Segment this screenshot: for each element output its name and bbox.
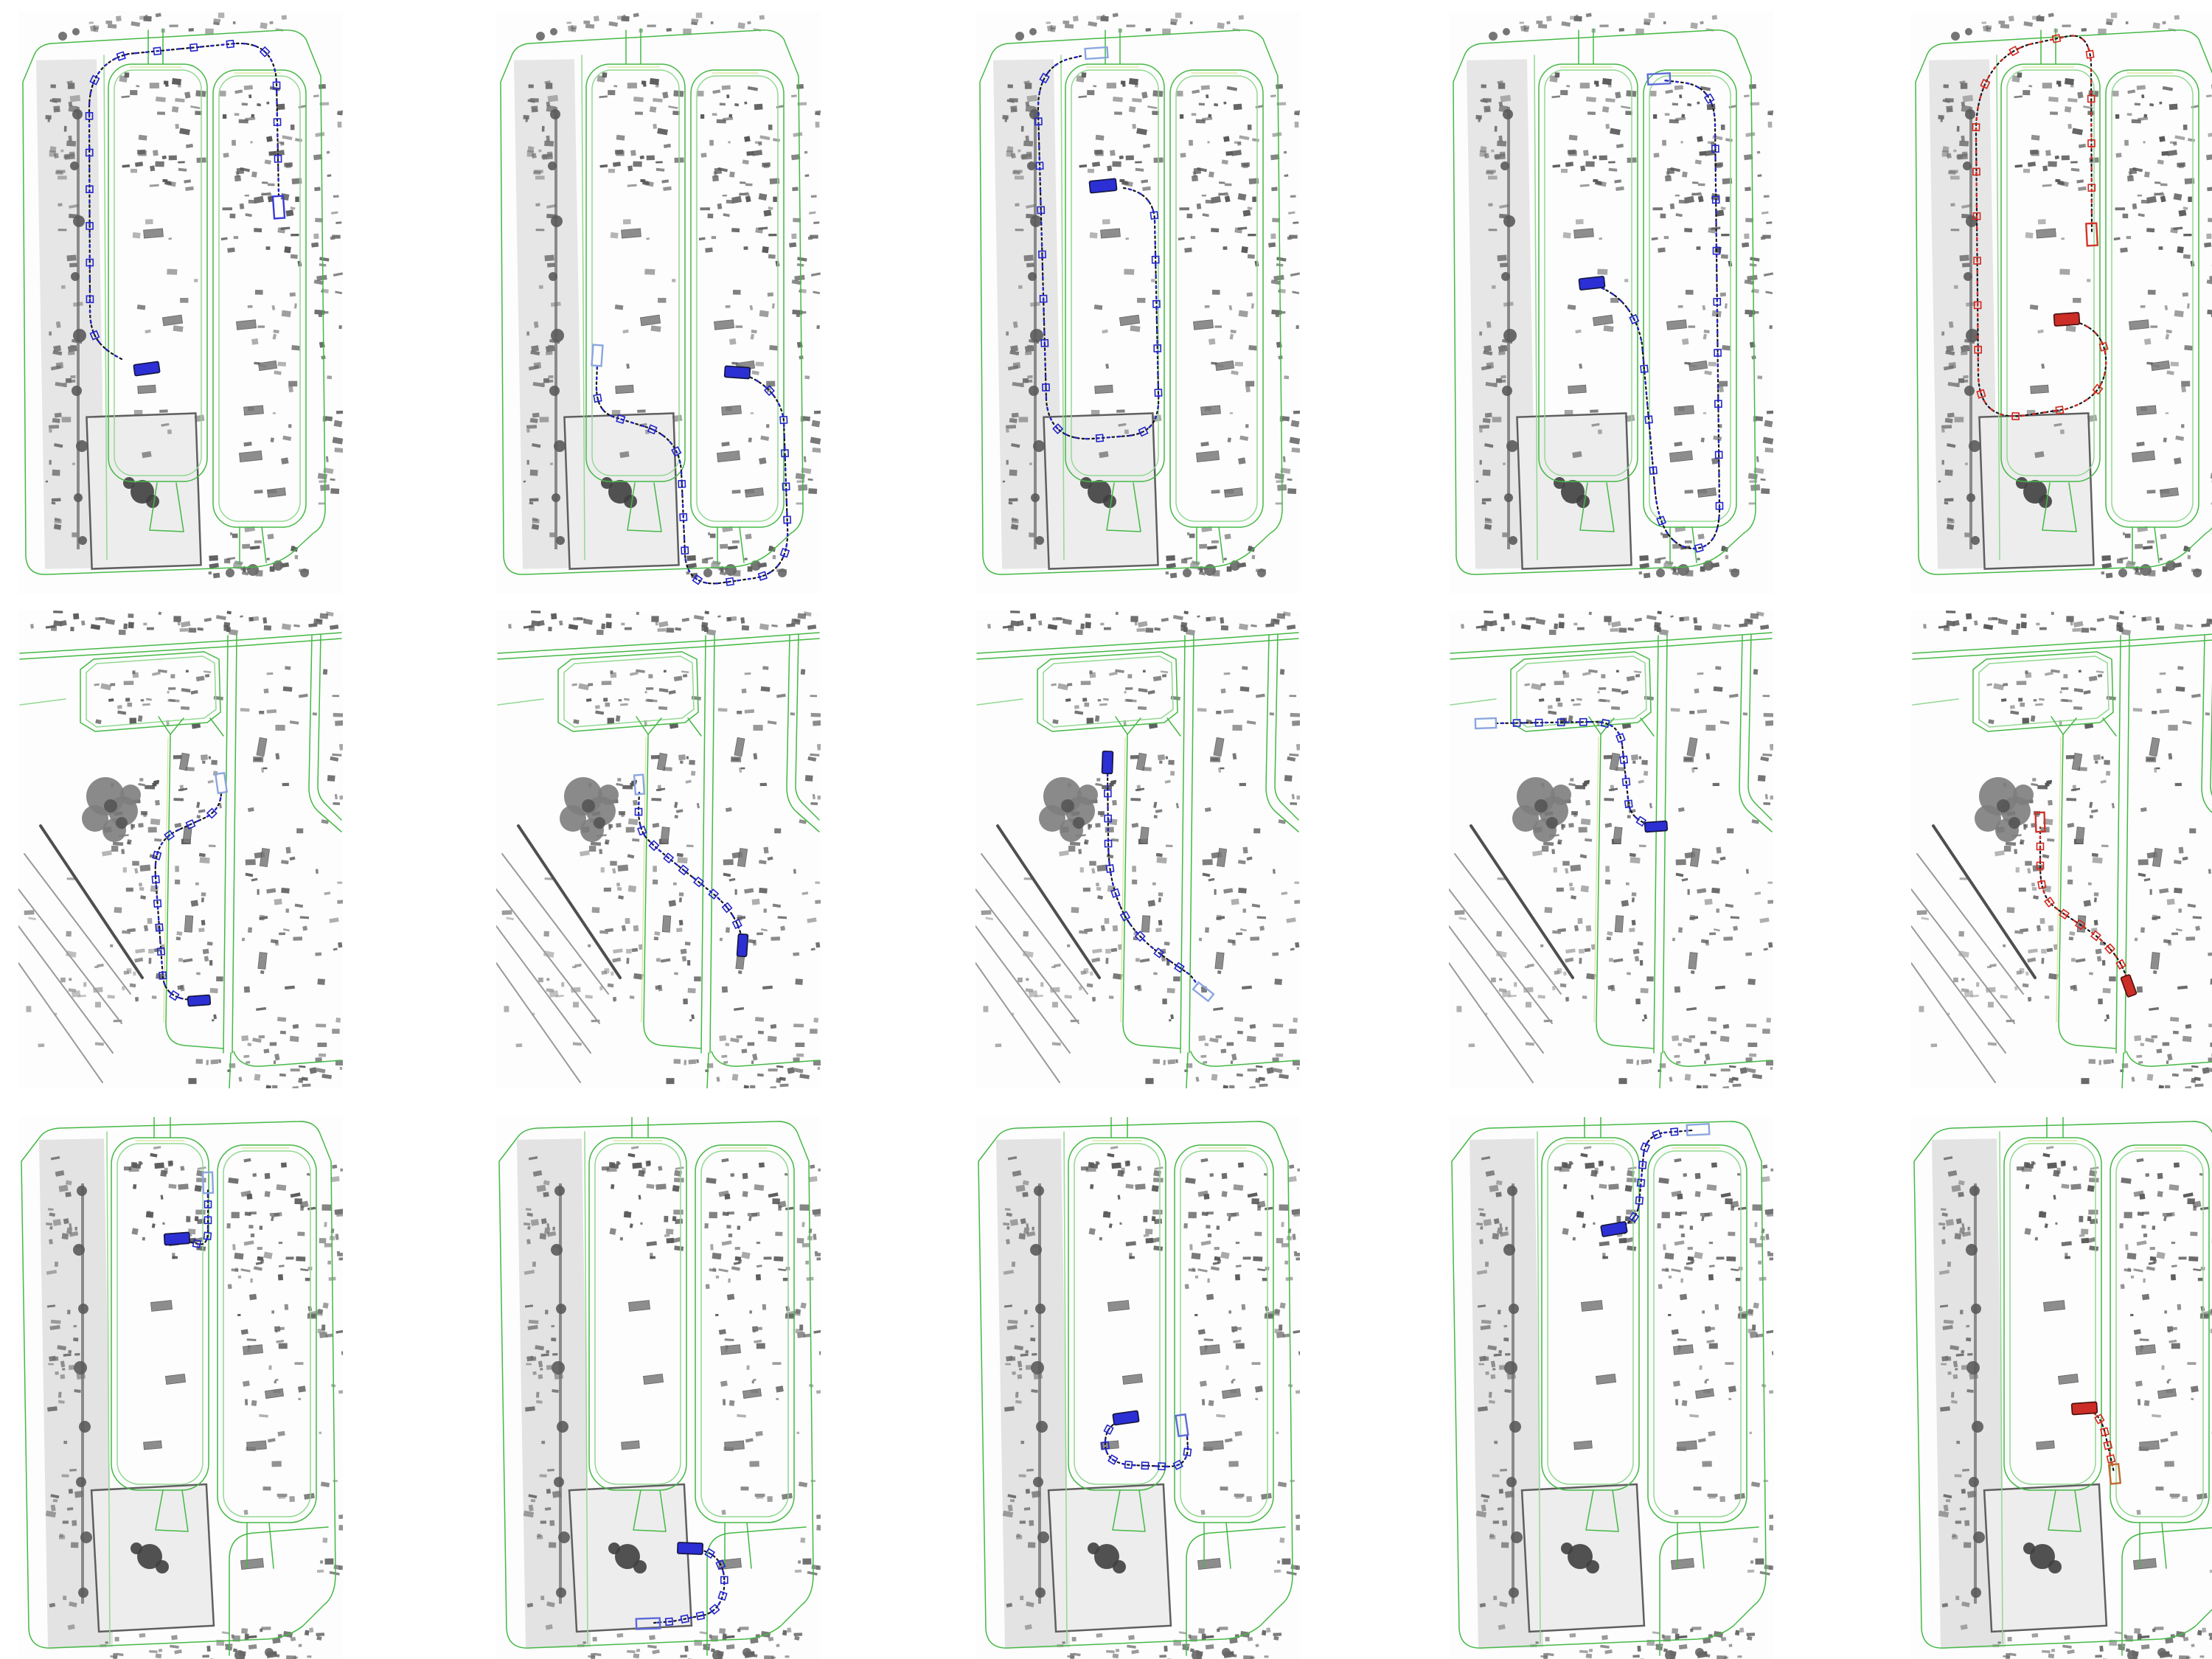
map-blob bbox=[551, 329, 564, 342]
map-area-band bbox=[1034, 107, 1037, 549]
ego-vehicle-box bbox=[678, 1543, 703, 1554]
ego-vehicle-box bbox=[2072, 1402, 2098, 1414]
map-blob bbox=[76, 440, 88, 452]
map-blob bbox=[1503, 329, 1517, 342]
map-blob bbox=[1966, 329, 1979, 342]
map-parked-car bbox=[138, 385, 156, 394]
map-blob bbox=[549, 386, 560, 396]
map-blob bbox=[2039, 495, 2052, 508]
map-parked-car bbox=[1574, 229, 1594, 238]
map-blob bbox=[633, 1560, 647, 1573]
map-parked-car bbox=[258, 953, 267, 970]
map-blob bbox=[76, 1477, 86, 1487]
map-blob bbox=[551, 215, 563, 227]
map-parked-car bbox=[1101, 229, 1121, 238]
map-blob bbox=[1015, 32, 1024, 41]
map-blob bbox=[73, 215, 85, 227]
map-blob bbox=[552, 1361, 565, 1374]
map-blob bbox=[778, 568, 787, 577]
trajectory-panel-r1c1 bbox=[496, 611, 821, 1088]
map-blob bbox=[1576, 495, 1590, 508]
map-blob bbox=[1963, 161, 1972, 170]
map-blob bbox=[1969, 1477, 1979, 1487]
map-blob bbox=[1965, 109, 1975, 119]
map-blob bbox=[2140, 564, 2152, 576]
map-blob bbox=[120, 785, 141, 805]
map-blob bbox=[1509, 1587, 1519, 1598]
map-blob bbox=[554, 1477, 564, 1487]
map-parked-car bbox=[1140, 827, 1149, 844]
map-parked-car bbox=[2140, 1441, 2160, 1450]
map-blob bbox=[1029, 28, 1037, 35]
map-area-band bbox=[554, 107, 557, 549]
map-blob bbox=[1503, 215, 1515, 227]
map-blob bbox=[1504, 493, 1513, 502]
map-blob bbox=[594, 817, 605, 829]
map-parked-car bbox=[247, 1441, 267, 1450]
trajectory-panel-r0c4 bbox=[1911, 11, 2212, 594]
map-parked-car bbox=[722, 406, 742, 415]
map-parked-car bbox=[1197, 1558, 1220, 1569]
map-blob bbox=[70, 161, 79, 170]
trajectory-panel-r2c3 bbox=[1449, 1117, 1773, 1659]
map-parked-car bbox=[1141, 916, 1150, 933]
map-parked-car bbox=[717, 451, 740, 462]
trajectory-panel-r2c4 bbox=[1911, 1117, 2212, 1659]
map-blob bbox=[556, 1304, 566, 1314]
ego-vehicle-box bbox=[188, 995, 211, 1006]
map-scene-b-r1c2 bbox=[975, 611, 1300, 1088]
map-parked-car bbox=[628, 1301, 650, 1312]
map-blob bbox=[1030, 1244, 1042, 1256]
map-parked-car bbox=[1204, 1441, 1224, 1450]
map-parked-car bbox=[714, 320, 734, 330]
map-background bbox=[975, 611, 1300, 1088]
map-blob bbox=[72, 386, 82, 396]
map-blob bbox=[557, 1421, 568, 1433]
map-blob bbox=[703, 568, 712, 577]
map-parked-car bbox=[2137, 406, 2157, 415]
map-scene-a-r0c1 bbox=[496, 11, 821, 594]
map-parked-car bbox=[184, 916, 193, 933]
map-parked-car bbox=[1669, 451, 1692, 462]
map-blob bbox=[74, 493, 83, 502]
map-parked-car bbox=[2135, 1345, 2155, 1355]
map-blob bbox=[2016, 477, 2028, 489]
map-blob bbox=[1029, 386, 1039, 396]
ego-vehicle-box bbox=[725, 366, 751, 378]
map-blob bbox=[558, 1531, 570, 1543]
trajectory-panel-r2c0 bbox=[18, 1117, 343, 1659]
map-blob bbox=[1511, 1531, 1523, 1543]
trajectory-panel-r2c1 bbox=[496, 1117, 821, 1659]
map-blob bbox=[1969, 440, 1980, 452]
map-area-band bbox=[77, 107, 80, 549]
map-blob bbox=[1997, 799, 2010, 813]
map-blob bbox=[549, 272, 557, 281]
map-parked-car bbox=[2151, 953, 2160, 970]
map-parked-car bbox=[239, 451, 262, 462]
map-scene-c-r2c3 bbox=[1449, 1117, 1773, 1659]
map-blob bbox=[582, 799, 595, 813]
trajectory-panel-r0c1 bbox=[496, 11, 821, 594]
map-blob bbox=[78, 1587, 88, 1598]
map-blob bbox=[601, 477, 613, 489]
map-parked-car bbox=[2133, 1558, 2156, 1569]
map-parked-car bbox=[183, 827, 192, 844]
map-parked-car bbox=[1201, 406, 1221, 415]
map-blob bbox=[1509, 1421, 1521, 1433]
map-blob bbox=[58, 32, 67, 41]
map-blob bbox=[1971, 1304, 1981, 1314]
map-blob bbox=[1969, 1186, 1980, 1196]
map-blob bbox=[300, 568, 309, 577]
map-blob bbox=[556, 1587, 566, 1598]
map-parked-car bbox=[144, 1441, 162, 1450]
map-blob bbox=[1503, 1244, 1515, 1256]
map-blob bbox=[104, 799, 117, 813]
map-blob bbox=[2023, 1543, 2035, 1554]
ego-vehicle-box bbox=[1579, 276, 1604, 290]
ego-vehicle-box bbox=[1102, 751, 1113, 773]
ego-vehicle-box bbox=[1645, 821, 1668, 832]
map-blob bbox=[1061, 799, 1074, 813]
map-blob bbox=[1561, 1543, 1573, 1554]
map-blob bbox=[1973, 1531, 1985, 1543]
map-blob bbox=[1073, 817, 1085, 829]
map-blob bbox=[2008, 817, 2020, 829]
map-blob bbox=[608, 1543, 620, 1554]
map-scene-b-r1c3 bbox=[1449, 611, 1773, 1088]
map-scene-c-r2c4 bbox=[1911, 1117, 2212, 1659]
map-blob bbox=[1677, 564, 1689, 576]
map-parked-car bbox=[144, 229, 164, 238]
map-parked-car bbox=[1568, 385, 1587, 394]
trajectory-panel-r0c2 bbox=[975, 11, 1300, 594]
map-blob bbox=[1554, 477, 1565, 489]
map-blob bbox=[536, 32, 545, 41]
map-blob bbox=[598, 785, 619, 805]
map-area-band bbox=[1507, 107, 1510, 549]
map-blob bbox=[1507, 1186, 1517, 1196]
map-blob bbox=[552, 493, 560, 502]
map-scene-b-r1c4 bbox=[1911, 611, 2212, 1088]
map-blob bbox=[2048, 1560, 2062, 1573]
map-blob bbox=[116, 817, 128, 829]
map-parked-car bbox=[244, 406, 264, 415]
map-blob bbox=[265, 1648, 274, 1657]
map-blob bbox=[1506, 1477, 1517, 1487]
map-background bbox=[1449, 611, 1773, 1088]
map-parked-car bbox=[236, 320, 256, 330]
map-parked-car bbox=[622, 1441, 640, 1450]
trajectory-panel-r1c0 bbox=[18, 611, 343, 1088]
map-parked-car bbox=[1615, 916, 1624, 933]
map-parked-car bbox=[1674, 406, 1694, 415]
map-blob bbox=[1503, 109, 1513, 119]
map-blob bbox=[1586, 1560, 1599, 1573]
map-blob bbox=[2118, 568, 2127, 577]
map-blob bbox=[1035, 536, 1044, 545]
map-blob bbox=[551, 1244, 563, 1256]
map-blob bbox=[1088, 1543, 1099, 1554]
map-parked-car bbox=[1095, 385, 1113, 394]
trajectory-panel-r0c0 bbox=[18, 11, 343, 594]
map-blob bbox=[550, 109, 560, 119]
map-blob bbox=[1971, 1587, 1981, 1598]
trajectory-panel-r1c4 bbox=[1911, 611, 2212, 1088]
map-parked-car bbox=[2037, 1441, 2055, 1450]
map-blob bbox=[226, 568, 234, 577]
map-blob bbox=[1966, 493, 1975, 502]
map-parked-car bbox=[1613, 827, 1622, 844]
map-parked-car bbox=[622, 229, 641, 238]
map-blob bbox=[1033, 440, 1045, 452]
map-blob bbox=[80, 1531, 92, 1543]
map-blob bbox=[554, 1186, 565, 1196]
map-area-band bbox=[1969, 107, 1972, 549]
map-scene-b-r1c0 bbox=[18, 611, 343, 1088]
map-blob bbox=[1204, 564, 1216, 576]
map-parked-car bbox=[725, 1441, 745, 1450]
map-blob bbox=[1966, 1361, 1980, 1374]
map-blob bbox=[1501, 272, 1510, 281]
map-blob bbox=[1035, 1587, 1046, 1598]
map-blob bbox=[1080, 477, 1092, 489]
map-blob bbox=[156, 1560, 169, 1573]
map-blob bbox=[1030, 215, 1042, 227]
map-scene-c-r2c2 bbox=[975, 1117, 1300, 1659]
map-blob bbox=[2013, 785, 2034, 805]
map-scene-a-r0c0 bbox=[18, 11, 343, 594]
map-parked-car bbox=[1688, 953, 1697, 970]
map-parked-car bbox=[1196, 451, 1219, 462]
map-parked-car bbox=[2129, 320, 2149, 330]
map-blob bbox=[1027, 161, 1036, 170]
map-parked-car bbox=[240, 1558, 263, 1569]
map-blob bbox=[77, 1186, 87, 1196]
map-parked-car bbox=[2043, 1301, 2065, 1312]
map-parked-car bbox=[1666, 320, 1686, 330]
map-blob bbox=[1695, 1648, 1704, 1657]
map-blob bbox=[1502, 386, 1512, 396]
map-blob bbox=[1035, 1304, 1046, 1314]
map-parked-car bbox=[2037, 229, 2056, 238]
map-blob bbox=[1509, 1304, 1519, 1314]
map-blob bbox=[742, 1648, 751, 1657]
map-blob bbox=[1036, 1421, 1048, 1433]
map-blob bbox=[1656, 568, 1665, 577]
map-blob bbox=[1551, 785, 1571, 805]
ego-vehicle-box bbox=[164, 1232, 190, 1245]
map-blob bbox=[1506, 440, 1518, 452]
ego-vehicle-box bbox=[1089, 178, 1116, 193]
map-parked-car bbox=[1677, 1441, 1697, 1450]
map-blob bbox=[1028, 272, 1037, 281]
map-blob bbox=[1951, 32, 1960, 41]
map-parked-car bbox=[1215, 953, 1224, 970]
map-parked-car bbox=[2132, 451, 2154, 462]
map-blob bbox=[78, 1304, 88, 1314]
map-blob bbox=[71, 272, 80, 281]
map-parked-car bbox=[2076, 827, 2084, 844]
map-parked-car bbox=[662, 916, 671, 933]
map-scene-a-r0c3 bbox=[1449, 11, 1773, 594]
map-blob bbox=[1222, 1648, 1231, 1657]
map-blob bbox=[1966, 215, 1978, 227]
map-blob bbox=[123, 477, 135, 489]
map-parked-car bbox=[1107, 1301, 1129, 1312]
map-blob bbox=[1077, 785, 1098, 805]
map-parked-car bbox=[720, 1345, 740, 1355]
figure-grid bbox=[0, 0, 2212, 1659]
map-blob bbox=[554, 440, 566, 452]
map-parked-car bbox=[616, 385, 634, 394]
map-blob bbox=[624, 495, 637, 508]
map-blob bbox=[1183, 568, 1192, 577]
trajectory-panel-r1c3 bbox=[1449, 611, 1773, 1088]
map-scene-a-r0c2 bbox=[975, 11, 1300, 594]
map-background bbox=[18, 611, 343, 1088]
map-blob bbox=[131, 1543, 142, 1554]
map-parked-car bbox=[2031, 385, 2049, 394]
map-scene-a-r0c4 bbox=[1911, 11, 2212, 594]
map-parked-car bbox=[150, 1301, 172, 1312]
map-blob bbox=[550, 28, 557, 35]
map-blob bbox=[1500, 161, 1509, 170]
map-blob bbox=[2193, 568, 2202, 577]
map-blob bbox=[1037, 1531, 1049, 1543]
map-blob bbox=[1504, 1361, 1517, 1374]
map-blob bbox=[1103, 495, 1116, 508]
map-blob bbox=[1031, 493, 1040, 502]
trajectory-panel-r0c3 bbox=[1449, 11, 1773, 594]
map-blob bbox=[2157, 1648, 2166, 1657]
map-blob bbox=[1731, 568, 1739, 577]
map-blob bbox=[1971, 536, 1980, 545]
trajectory-panel-r1c2 bbox=[975, 611, 1300, 1088]
map-blob bbox=[1964, 386, 1975, 396]
ego-vehicle-box bbox=[2053, 313, 2079, 326]
map-scene-c-r2c0 bbox=[18, 1117, 343, 1659]
map-blob bbox=[548, 161, 557, 170]
map-blob bbox=[1033, 1477, 1043, 1487]
map-blob bbox=[1964, 272, 1972, 281]
map-parked-car bbox=[243, 1345, 262, 1355]
map-blob bbox=[72, 109, 83, 119]
map-blob bbox=[1966, 1244, 1978, 1256]
map-blob bbox=[1257, 568, 1266, 577]
ego-vehicle-box bbox=[737, 934, 748, 957]
map-blob bbox=[73, 329, 86, 342]
map-parked-car bbox=[1193, 320, 1213, 330]
map-blob bbox=[1509, 536, 1517, 545]
map-blob bbox=[1031, 1361, 1044, 1374]
map-scene-b-r1c1 bbox=[496, 611, 821, 1088]
map-blob bbox=[1965, 28, 1972, 35]
map-blob bbox=[1972, 1421, 1983, 1433]
map-blob bbox=[72, 28, 80, 35]
map-blob bbox=[74, 1361, 87, 1374]
map-scene-c-r2c1 bbox=[496, 1117, 821, 1659]
map-blob bbox=[146, 495, 159, 508]
map-parked-car bbox=[1581, 1301, 1602, 1312]
map-blob bbox=[1034, 1186, 1044, 1196]
map-blob bbox=[725, 564, 737, 576]
map-parked-car bbox=[1200, 1345, 1220, 1355]
map-blob bbox=[1503, 28, 1510, 35]
map-blob bbox=[1546, 817, 1558, 829]
map-blob bbox=[73, 1244, 85, 1256]
trajectory-panel-r2c2 bbox=[975, 1117, 1300, 1659]
map-parked-car bbox=[1673, 1345, 1693, 1355]
map-blob bbox=[79, 1421, 91, 1433]
map-blob bbox=[556, 536, 565, 545]
map-parked-car bbox=[1574, 1441, 1593, 1450]
map-blob bbox=[1534, 799, 1548, 813]
map-blob bbox=[78, 536, 87, 545]
map-blob bbox=[1113, 1560, 1126, 1573]
map-blob bbox=[1489, 32, 1498, 41]
map-parked-car bbox=[1671, 1558, 1694, 1569]
map-blob bbox=[247, 564, 259, 576]
map-parked-car bbox=[661, 827, 669, 844]
